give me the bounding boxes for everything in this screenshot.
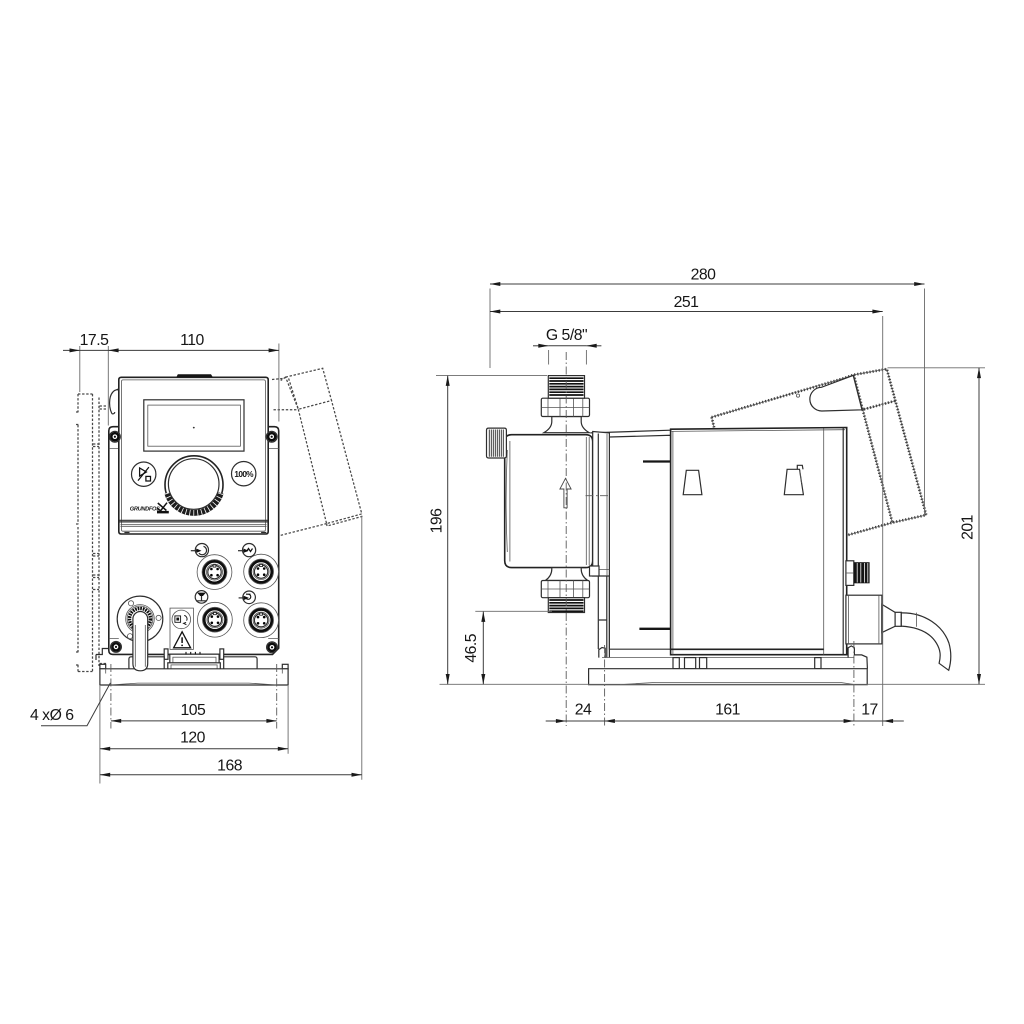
- svg-text:17.5: 17.5: [80, 332, 109, 349]
- svg-text:105: 105: [180, 702, 206, 719]
- svg-text:120: 120: [180, 729, 206, 746]
- svg-text:G 5/8": G 5/8": [546, 327, 587, 344]
- svg-text:110: 110: [180, 332, 204, 349]
- svg-text:251: 251: [674, 294, 700, 311]
- svg-text:4 xØ 6: 4 xØ 6: [30, 707, 74, 724]
- svg-text:196: 196: [429, 508, 446, 534]
- svg-text:100%: 100%: [234, 470, 254, 479]
- svg-text:280: 280: [691, 267, 717, 284]
- svg-text:201: 201: [960, 514, 977, 540]
- svg-text:161: 161: [715, 702, 741, 719]
- svg-text:GRUNDFOS: GRUNDFOS: [130, 506, 160, 512]
- svg-text:46.5: 46.5: [463, 633, 480, 662]
- svg-text:17: 17: [861, 702, 878, 719]
- svg-text:24: 24: [575, 702, 592, 719]
- svg-text:168: 168: [217, 758, 243, 775]
